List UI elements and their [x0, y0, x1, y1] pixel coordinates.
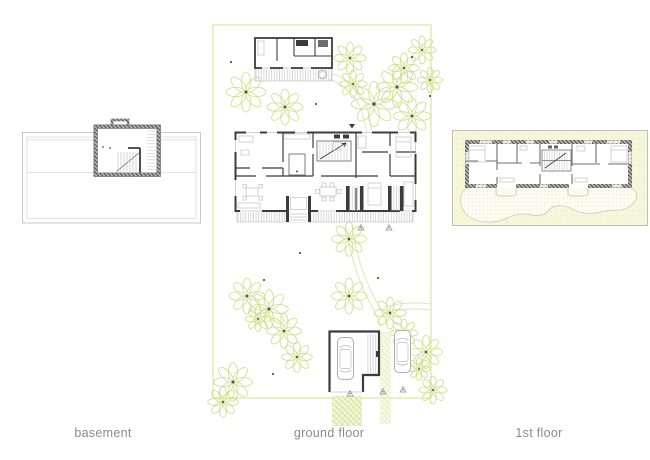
- loggia-right: [388, 186, 404, 211]
- section-marker-bottom: [358, 225, 392, 231]
- basement-label: basement: [74, 426, 131, 440]
- tree-icon: [339, 70, 367, 98]
- tree-icon: [393, 97, 430, 134]
- ground-floor-label: ground floor: [294, 426, 364, 440]
- ground-floor-site-plan: [208, 25, 447, 426]
- tree-icon: [417, 67, 442, 92]
- car-icon: [338, 338, 354, 380]
- first-floor-label: 1st floor: [515, 426, 562, 440]
- basement-plan: [23, 120, 201, 223]
- tree-icon: [267, 314, 302, 349]
- loggia-left: [346, 186, 364, 211]
- car-icon: [395, 331, 411, 373]
- tree-icon: [419, 376, 447, 404]
- first-floor-plan: [453, 131, 648, 226]
- tree-icon: [408, 358, 431, 381]
- tree-icon: [331, 278, 367, 314]
- tree-icon: [267, 89, 303, 125]
- section-marker-top: [349, 124, 355, 129]
- floor-plan-canvas: [0, 0, 650, 460]
- pool-house-plan: [255, 38, 332, 81]
- tree-icon: [229, 278, 265, 314]
- tree-icon: [282, 342, 313, 373]
- terrace-deck: [237, 211, 413, 222]
- first-floor-house: [465, 140, 632, 188]
- garage-plan: [330, 332, 381, 393]
- tree-icon: [334, 42, 366, 74]
- pool-house-doors: [262, 67, 311, 69]
- main-house-plan: [234, 124, 417, 230]
- tree-icon: [376, 66, 417, 107]
- architectural-plan-sheet: basement ground floor 1st floor: [0, 0, 650, 460]
- entry-porch: [286, 196, 311, 222]
- basement-room: [94, 120, 161, 177]
- tree-icon: [245, 306, 270, 331]
- trees: [208, 36, 447, 417]
- tree-icon: [389, 53, 420, 84]
- tree-icon: [208, 387, 239, 418]
- tree-icon: [409, 335, 442, 368]
- tree-icon: [332, 222, 367, 257]
